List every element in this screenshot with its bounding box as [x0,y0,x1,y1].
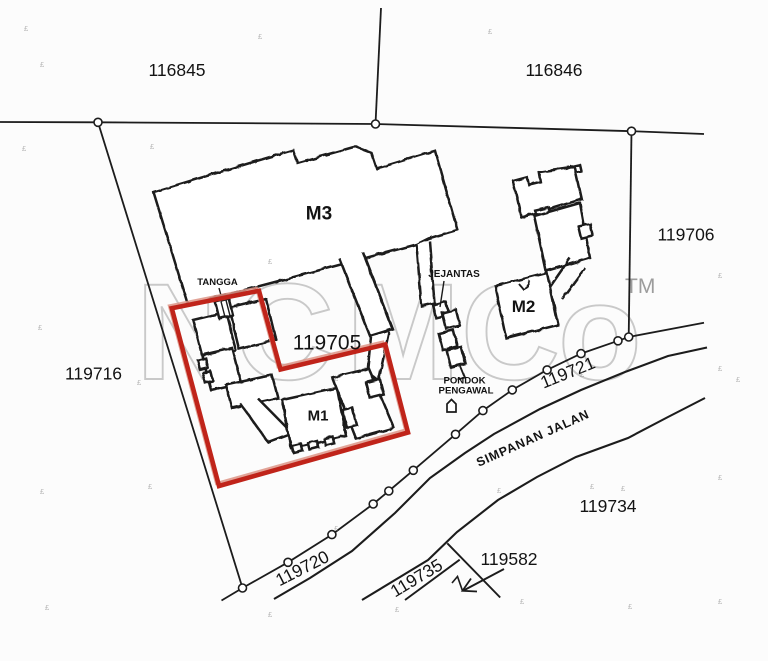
svg-text:116846: 116846 [525,60,582,80]
svg-text:119582: 119582 [480,549,537,569]
svg-text:M3: M3 [306,204,332,225]
svg-text:116845: 116845 [148,60,205,80]
svg-text:M2: M2 [512,297,536,316]
svg-text:119706: 119706 [657,225,714,245]
svg-text:JEJANTAS: JEJANTAS [428,269,480,280]
svg-text:119734: 119734 [579,496,636,516]
svg-text:TANGGA: TANGGA [197,277,238,288]
svg-text:M1: M1 [308,408,329,425]
svg-text:119705: 119705 [293,332,362,355]
svg-text:119716: 119716 [65,364,122,384]
svg-text:PENGAWAL: PENGAWAL [439,386,494,397]
